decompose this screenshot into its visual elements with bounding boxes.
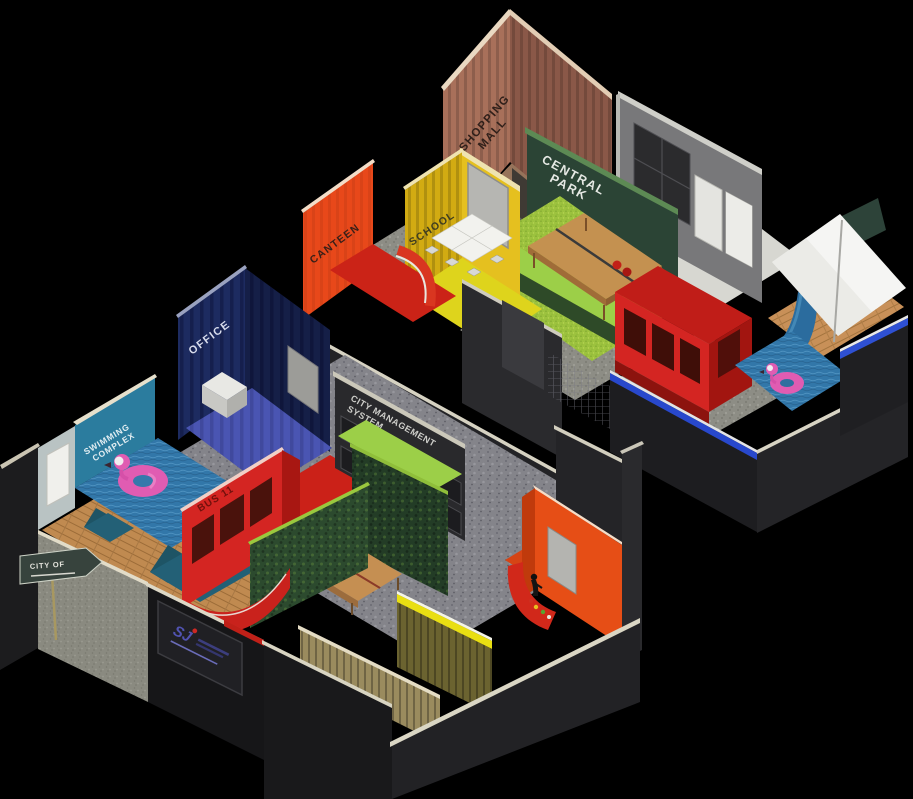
paddle	[613, 261, 622, 270]
flamingo-face	[115, 457, 124, 466]
flamingo-face	[767, 365, 773, 371]
paddle	[623, 268, 632, 277]
isometric-office-render: SHOPPING MALL CENTRAL PARK	[0, 0, 913, 799]
